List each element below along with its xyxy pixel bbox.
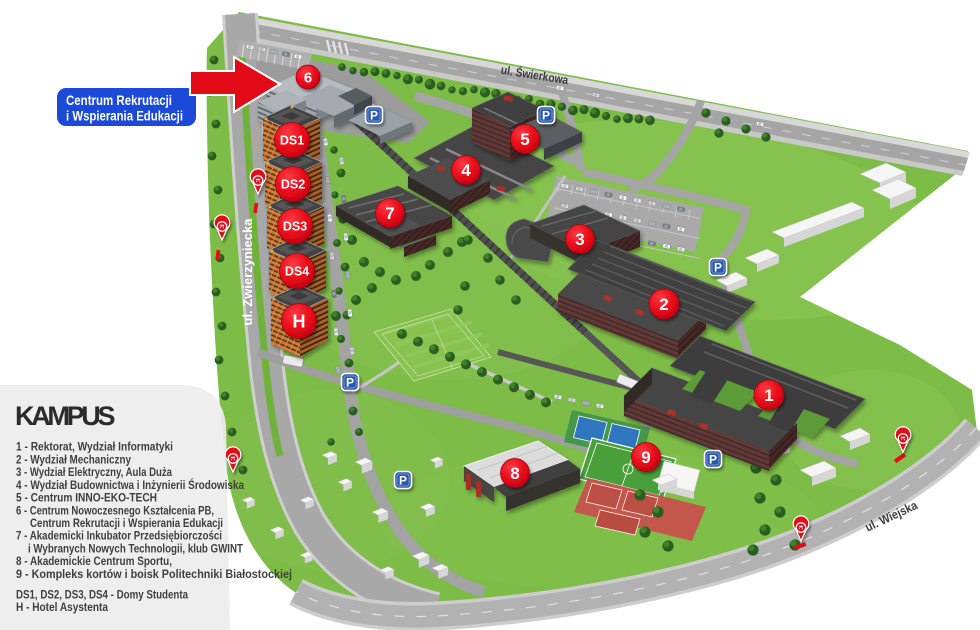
svg-text:8: 8 <box>510 464 519 483</box>
svg-text:ul. Zwierzyniecka: ul. Zwierzyniecka <box>240 218 255 326</box>
svg-text:i Wspierania Edukacji: i Wspierania Edukacji <box>66 109 183 124</box>
svg-text:P: P <box>542 108 550 122</box>
svg-text:P: P <box>370 108 378 122</box>
svg-text:7: 7 <box>385 204 394 223</box>
svg-text:DS1: DS1 <box>280 134 304 148</box>
svg-text:P: P <box>346 375 354 389</box>
svg-text:KAMPUS: KAMPUS <box>15 401 117 431</box>
svg-text:6: 6 <box>304 69 312 86</box>
svg-text:1: 1 <box>764 386 773 405</box>
svg-text:9: 9 <box>641 448 650 467</box>
svg-text:P: P <box>714 260 722 274</box>
svg-text:DS3: DS3 <box>283 220 307 234</box>
svg-text:2: 2 <box>659 295 668 314</box>
svg-text:DS2: DS2 <box>281 178 305 192</box>
svg-text:H - Hotel Asystenta: H - Hotel Asystenta <box>16 600 108 614</box>
svg-text:9 - Kompleks kortów i boisk P: 9 - Kompleks kortów i boisk Politechniki… <box>16 567 292 581</box>
svg-text:Centrum Rekrutacji: Centrum Rekrutacji <box>66 93 172 108</box>
svg-text:P: P <box>709 452 717 466</box>
svg-text:4: 4 <box>461 161 471 180</box>
svg-text:5: 5 <box>520 130 529 149</box>
svg-text:P: P <box>399 473 407 487</box>
svg-text:H: H <box>293 311 306 331</box>
svg-text:3: 3 <box>575 230 584 249</box>
svg-text:DS4: DS4 <box>285 265 309 279</box>
